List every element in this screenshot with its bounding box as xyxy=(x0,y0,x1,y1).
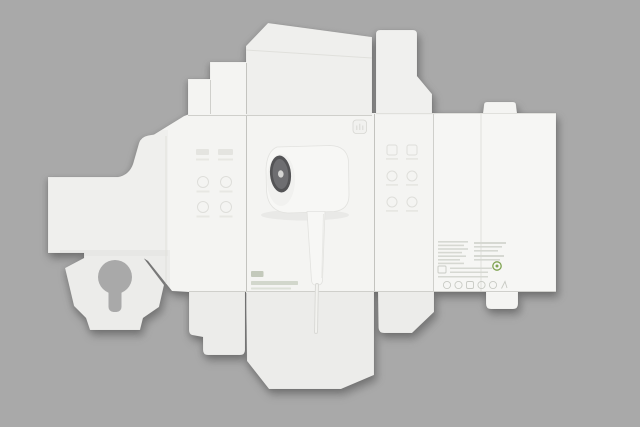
spec-text-line xyxy=(438,248,468,250)
feature-caption-bar xyxy=(220,216,233,218)
feature-caption-bar xyxy=(386,210,398,212)
spec-panel-highlight xyxy=(434,113,556,293)
feature-caption-bar xyxy=(386,158,398,160)
feature-icon xyxy=(196,149,209,155)
keyhole-slot xyxy=(109,288,122,312)
feature-caption-bar xyxy=(386,184,398,186)
top-flap-shading xyxy=(246,23,372,115)
photo-canvas xyxy=(0,0,640,427)
mijia-logo-icon xyxy=(353,120,367,134)
product-subtitle-line xyxy=(251,288,291,290)
feature-caption-bar xyxy=(196,159,209,161)
info-text-line xyxy=(474,255,504,257)
feature-caption-bar xyxy=(220,191,233,193)
info-text-line xyxy=(474,242,506,244)
spec-text-line xyxy=(438,263,464,265)
info-text-line xyxy=(474,246,502,248)
product-name-line xyxy=(251,281,298,285)
notice-text-line xyxy=(450,272,488,274)
mijia-wordmark-chip xyxy=(251,271,264,277)
feature-caption-bar xyxy=(406,184,418,186)
notice-text-line xyxy=(450,268,492,270)
spec-text-line xyxy=(438,241,468,243)
feature-caption-bar xyxy=(197,191,210,193)
notice-text-line xyxy=(438,276,488,278)
feature-caption-bar xyxy=(218,159,233,161)
spec-text-line xyxy=(438,245,464,247)
feature-caption-bar xyxy=(406,210,418,212)
spec-text-line xyxy=(438,255,466,257)
feature-caption-bar xyxy=(197,216,210,218)
spec-text-line xyxy=(438,259,460,261)
info-text-line xyxy=(474,250,498,252)
spec-text-line xyxy=(438,252,462,254)
dieline-photo xyxy=(0,0,640,427)
feature-caption-bar xyxy=(406,158,418,160)
power-cord xyxy=(316,285,317,332)
info-text-line xyxy=(474,259,500,261)
feature-icon xyxy=(218,149,233,155)
